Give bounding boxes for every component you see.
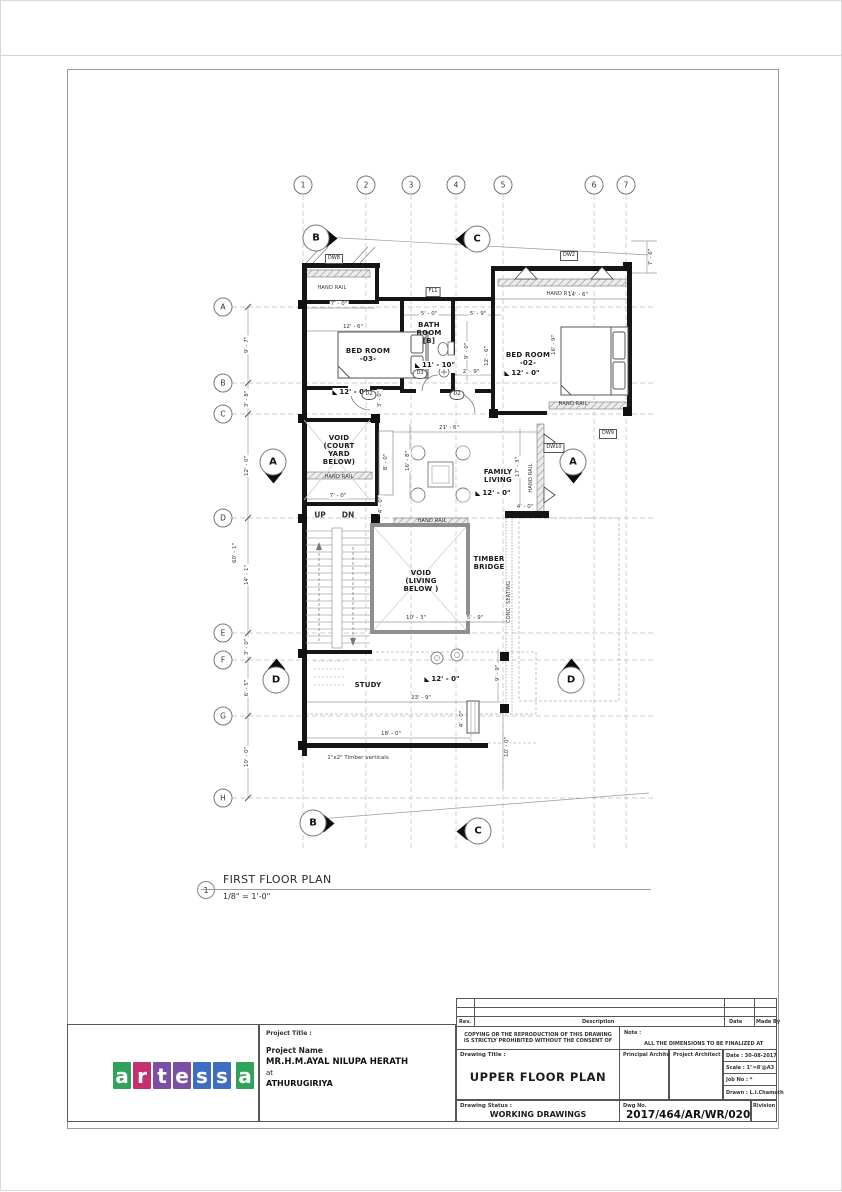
- drawing-status-cell: Drawing Status : WORKING DRAWINGS: [456, 1100, 620, 1122]
- grid-row-bubble: G: [214, 707, 233, 726]
- logo-letter: s: [193, 1062, 211, 1089]
- dim-row-e-f: 3' - 0": [244, 638, 250, 657]
- dim-text: 5' - 9": [469, 311, 488, 317]
- dim-text: 17' - 3": [515, 456, 521, 478]
- dim-text: 10' - 0": [504, 736, 510, 758]
- level-marker-icon: [415, 362, 420, 367]
- room-label-bathroom: BATH ROOM [B]: [416, 321, 441, 345]
- logo-letter: e: [173, 1062, 191, 1089]
- room-label-family-living: FAMILY LIVING: [484, 468, 513, 484]
- level-marker-icon: [424, 676, 429, 681]
- level-marker-bed2: 12' - 0": [504, 369, 539, 377]
- section-marker-c-bottom: C: [465, 818, 492, 845]
- dim-text: 14' - 6": [567, 292, 589, 298]
- level-marker-icon: [332, 389, 337, 394]
- dim-text: 5' - 0": [420, 311, 439, 317]
- dim-text: 2' - 9": [462, 369, 481, 375]
- section-marker-d-right: D: [558, 667, 585, 694]
- dim-text: 9' - 9": [495, 664, 501, 683]
- window-tag-dw9: DW9: [599, 429, 617, 439]
- rev-column-header: Rev.: [459, 1019, 471, 1025]
- plan-scale-text: 1/8" = 1'-0": [223, 892, 270, 901]
- dim-row-g-h: 10' - 0": [244, 746, 250, 768]
- dim-text: 8' - 0": [383, 453, 389, 472]
- dim-text: 23' - 9": [410, 695, 432, 701]
- section-marker-a-left: A: [260, 449, 287, 476]
- note-cell: Note : ALL THE DIMENSIONS TO BE FINALIZE…: [619, 1026, 777, 1050]
- logo-letter: s: [213, 1062, 231, 1089]
- client-name: MR.H.M.AYAL NILUPA HERATH: [266, 1057, 449, 1067]
- artessa-logo: a r t e s s a: [113, 1062, 254, 1089]
- plan-title-underline: [201, 889, 651, 890]
- drawing-status-label: Drawing Status :: [460, 1103, 512, 1109]
- grid-col-bubble: 6: [585, 176, 604, 195]
- hand-rail-label: HAND RAIL: [558, 402, 587, 408]
- project-architect-cell: Project Architect :: [669, 1049, 723, 1100]
- grid-col-bubble: 5: [494, 176, 513, 195]
- section-marker-d-left: D: [263, 667, 290, 694]
- level-marker-bath: 11' - 10": [415, 361, 455, 369]
- stair-dn-label: DN: [342, 512, 355, 521]
- date-value: Date : 30-08-2017: [726, 1053, 777, 1059]
- drawing-title-text: UPPER FLOOR PLAN: [457, 1070, 619, 1084]
- timber-verticals-note: 1"x2" Timber verticals: [327, 755, 388, 761]
- grid-col-bubble: 4: [447, 176, 466, 195]
- section-marker-c-top: C: [464, 226, 491, 253]
- dim-overall-height: 60' - 1": [232, 542, 238, 564]
- door-tag-d3: D3: [412, 369, 427, 379]
- fixture-tag-fl1: FL1: [426, 287, 441, 297]
- project-location: ATHURUGIRIYA: [266, 1079, 449, 1088]
- grid-row-bubble: H: [214, 789, 233, 808]
- revision-cell: Rivision: [751, 1100, 777, 1122]
- conc-seating-label: CONC. SEATING: [507, 581, 513, 623]
- dim-row-c-d: 12' - 0": [244, 455, 250, 477]
- logo-letter: a: [113, 1062, 131, 1089]
- grid-row-bubble: D: [214, 509, 233, 528]
- dim-text: 3' - 0": [377, 390, 383, 409]
- dim-text: 7' - 6": [648, 248, 654, 267]
- dim-row-b-c: 3' - 8": [244, 390, 250, 409]
- grid-row-bubble: F: [214, 651, 233, 670]
- project-cell: Project Title : Project Name MR.H.M.AYAL…: [259, 1024, 456, 1122]
- section-marker-b-bottom: B: [300, 810, 327, 837]
- date-column-header: Date: [729, 1019, 742, 1025]
- project-title-label: Project Title :: [266, 1030, 449, 1037]
- pdf-page: { "plan": { "number": "1", "title": "FIR…: [0, 0, 842, 1191]
- dim-text: 10' - 3": [405, 615, 427, 621]
- dim-text: 7' - 0": [330, 301, 349, 307]
- grid-row-bubble: A: [214, 298, 233, 317]
- note-label: Note :: [624, 1030, 641, 1036]
- drawing-title-cell: Drawing Title : UPPER FLOOR PLAN: [456, 1049, 620, 1100]
- drawn-by-value: Drawn : L.I.Chamath: [726, 1090, 784, 1096]
- project-name-label: Project Name: [266, 1046, 449, 1055]
- principal-architect-cell: Principal Architect :: [619, 1049, 669, 1100]
- drawing-title-label: Drawing Title :: [460, 1052, 506, 1058]
- level-marker-icon: [475, 490, 480, 495]
- dim-text: 18' - 0": [380, 731, 402, 737]
- room-label-void-living: VOID (LIVING BELOW ): [403, 569, 438, 593]
- logo-letter: a: [236, 1062, 254, 1089]
- room-label-bedroom2: BED ROOM -02-: [506, 351, 550, 367]
- hand-rail-label: HAND RAIL: [324, 475, 353, 481]
- dim-text: 4' - 0": [516, 504, 535, 510]
- logo-letter: r: [133, 1062, 151, 1089]
- logo-letter: t: [153, 1062, 171, 1089]
- copyright-cell: COPYING OR THE REPRODUCTION OF THIS DRAW…: [456, 1026, 620, 1050]
- dim-row-a-b: 9' - 7": [244, 336, 250, 355]
- window-tag-dw10: DW10: [543, 443, 564, 453]
- drawn-by-cell: Drawn : L.I.Chamath: [723, 1085, 777, 1100]
- stair-up-label: UP: [314, 512, 326, 521]
- hand-rail-label: HAND RAIL: [529, 463, 535, 492]
- dim-text: 21' - 6": [438, 425, 460, 431]
- grid-col-bubble: 7: [617, 176, 636, 195]
- drawing-status-text: WORKING DRAWINGS: [457, 1110, 619, 1119]
- plan-number-bubble: 1: [197, 881, 215, 899]
- dim-text: 16' - 9": [551, 334, 557, 356]
- grid-row-bubble: C: [214, 405, 233, 424]
- plan-title-text: FIRST FLOOR PLAN: [223, 873, 332, 886]
- grid-col-bubble: 2: [357, 176, 376, 195]
- dim-text: 9' - 0": [464, 342, 470, 361]
- dim-text: 12' - 6": [342, 324, 364, 330]
- door-tag-d2: D2: [449, 390, 464, 400]
- made-by-column-header: Made By: [756, 1019, 780, 1025]
- dwg-no-cell: Dwg No. 2017/464/AR/WR/0202: [619, 1100, 751, 1122]
- scale-value: Scale : 1"=8'@A3: [726, 1065, 774, 1071]
- door-tag-d2: D2: [361, 390, 376, 400]
- dwg-no-value: 2017/464/AR/WR/0202: [626, 1109, 758, 1121]
- dim-row-d-e: 14' - 1": [244, 564, 250, 586]
- grid-col-bubble: 1: [294, 176, 313, 195]
- dim-text: 12' - 6": [484, 345, 490, 367]
- dim-text: 16' - 8": [405, 450, 411, 472]
- grid-row-bubble: E: [214, 624, 233, 643]
- level-marker-family: 12' - 0": [475, 489, 510, 497]
- hand-rail-label: HAND RAIL: [317, 286, 346, 292]
- copyright-text: COPYING OR THE REPRODUCTION OF THIS DRAW…: [457, 1032, 619, 1044]
- window-tag-dw8: DW8: [325, 254, 343, 264]
- level-marker-icon: [504, 370, 509, 375]
- grid-col-bubble: 3: [402, 176, 421, 195]
- job-no-value: Job No : *: [726, 1077, 752, 1083]
- hand-rail-label: HAND RAIL: [417, 519, 446, 525]
- dim-text: 5' - 9": [466, 615, 485, 621]
- dim-row-f-g: 6' - 5": [244, 679, 250, 698]
- section-marker-b-top: B: [303, 225, 330, 252]
- room-label-bedroom3: BED ROOM -03-: [346, 347, 390, 363]
- project-at-label: at: [266, 1069, 449, 1077]
- dim-text: 4' - 0": [459, 710, 465, 729]
- grid-row-bubble: B: [214, 374, 233, 393]
- dim-text: 4' - 0": [378, 496, 384, 515]
- revision-label: Rivision: [753, 1103, 775, 1109]
- window-tag-dw2: DW2: [560, 251, 578, 261]
- level-marker-study: 12' - 0": [424, 675, 459, 683]
- room-label-void-courtyard: VOID (COURT YARD BELOW): [323, 434, 355, 466]
- description-column-header: Description: [582, 1019, 614, 1025]
- room-label-timber-bridge: TIMBER BRIDGE: [473, 555, 504, 571]
- project-architect-label: Project Architect :: [673, 1052, 724, 1058]
- dim-text: 7' - 0": [329, 493, 348, 499]
- room-label-study: STUDY: [355, 681, 382, 689]
